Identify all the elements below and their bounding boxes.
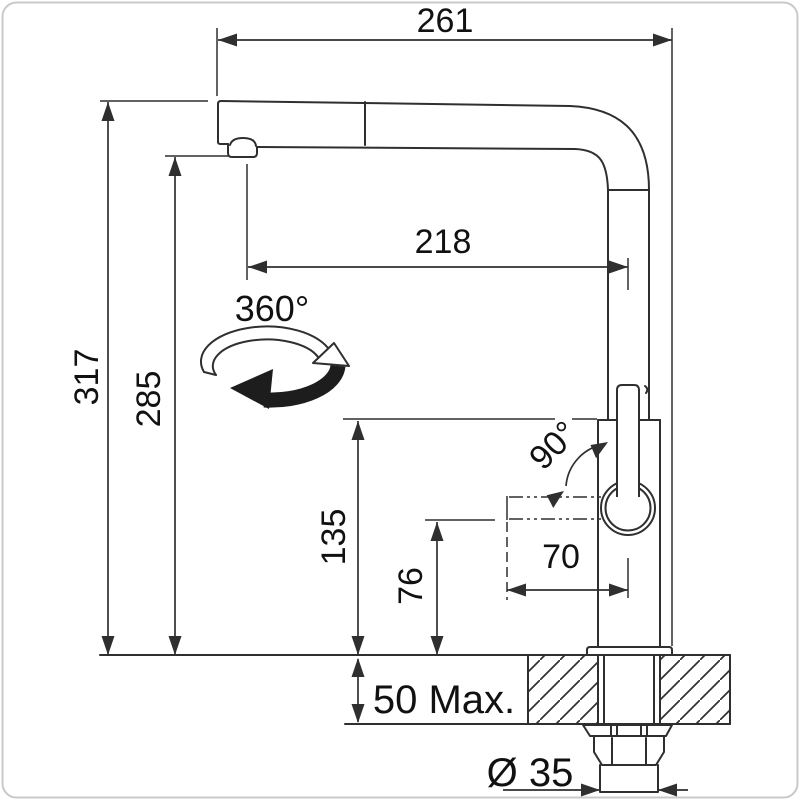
dim-spout-reach: 218 xyxy=(247,164,628,290)
faucet-dimension-drawing: 261 218 317 285 135 76 xyxy=(0,0,800,800)
arrow-top xyxy=(431,522,444,541)
dim-counter-thickness: 50 Max. xyxy=(352,658,516,723)
spout-tip-bottom xyxy=(218,142,228,144)
technical-drawing-page: 261 218 317 285 135 76 xyxy=(0,0,800,800)
elbow-inner-curve xyxy=(575,149,608,190)
dim-70-label: 70 xyxy=(542,538,580,576)
washer-slots xyxy=(611,726,647,735)
arrow-left xyxy=(248,261,267,274)
swivel-360-symbol: 360° xyxy=(201,288,349,409)
mounting-nut xyxy=(594,736,664,765)
handle-lever-nub xyxy=(645,386,647,393)
dim-261-label: 261 xyxy=(417,2,474,40)
elbow-outer-curve xyxy=(570,106,649,190)
arrow-left xyxy=(218,34,237,47)
faucet-outline xyxy=(218,101,672,655)
rotation-arrow-white xyxy=(313,343,349,366)
handle-lever xyxy=(617,385,639,497)
arrow-right xyxy=(609,261,628,274)
arrow-left-inward xyxy=(581,784,600,797)
arrow-right-inward xyxy=(658,784,677,797)
dim-handle-reach: 70 xyxy=(507,538,628,598)
arrow-bottom xyxy=(102,636,115,655)
dim-218-label: 218 xyxy=(415,223,472,261)
arrow-left xyxy=(507,584,526,597)
swing-angle-label: 90° xyxy=(522,414,585,477)
dim-285-label: 285 xyxy=(130,371,168,428)
handle-swing-annotation: 90° xyxy=(522,414,609,508)
dim-76-label: 76 xyxy=(392,567,430,605)
washer xyxy=(583,725,672,736)
arrow-bottom xyxy=(352,636,365,655)
arrow-bottom xyxy=(431,636,444,655)
rotation-ring-inner-arc xyxy=(213,339,318,375)
arrow-bottom xyxy=(169,636,182,655)
dim-diameter-label: Ø 35 xyxy=(487,751,574,795)
spout-top-edge xyxy=(218,101,570,142)
hatch-left xyxy=(528,656,598,724)
hatch-right xyxy=(660,656,730,724)
base-flange xyxy=(587,647,672,655)
dim-aerator-height: 285 xyxy=(130,156,228,655)
arrow-right xyxy=(609,584,628,597)
spout-bottom-edge xyxy=(257,147,575,149)
rotation-band-black xyxy=(264,366,338,400)
arrow-bottom xyxy=(352,704,365,723)
arrow-right xyxy=(653,34,672,47)
aerator xyxy=(228,144,257,157)
dim-317-label: 317 xyxy=(68,349,106,406)
mounting-hardware xyxy=(583,725,672,792)
arrow-top xyxy=(352,421,365,440)
aerator-dome xyxy=(230,138,256,146)
mounting-hole-walls xyxy=(598,656,660,724)
swing-arrow-lower xyxy=(543,484,566,508)
rotation-arrow-black xyxy=(230,369,273,409)
dim-handle-height: 76 xyxy=(392,520,495,655)
swivel-angle-label: 360° xyxy=(235,288,309,329)
dim-135-label: 135 xyxy=(315,509,353,566)
dim-50max-label: 50 Max. xyxy=(373,678,515,722)
arrow-top xyxy=(352,658,365,677)
arrow-top xyxy=(102,102,115,121)
arrow-top xyxy=(169,157,182,176)
threaded-shank xyxy=(600,765,658,792)
nut-facets xyxy=(612,738,646,765)
handle xyxy=(601,385,655,535)
